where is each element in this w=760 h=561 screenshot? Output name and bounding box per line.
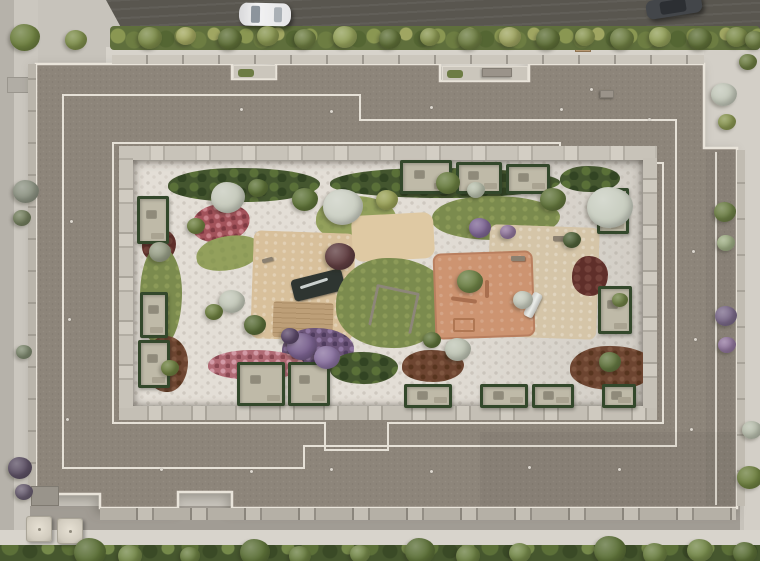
tree — [456, 545, 480, 561]
tree — [509, 543, 531, 561]
tree — [643, 543, 667, 561]
tree — [742, 421, 760, 439]
tree — [405, 538, 435, 561]
courtyard-facade-north — [119, 146, 657, 160]
white-car — [239, 3, 291, 27]
terrace — [137, 196, 169, 244]
vent — [330, 110, 333, 113]
vent — [160, 468, 163, 471]
vent — [430, 470, 433, 473]
hedge-bed — [330, 352, 398, 384]
vent — [692, 250, 695, 253]
terrace — [480, 384, 528, 408]
tree — [594, 536, 626, 561]
terrace — [237, 362, 285, 406]
entrance-canopy — [31, 486, 59, 506]
vent — [66, 418, 69, 421]
tree — [180, 547, 200, 561]
west-facade — [28, 64, 36, 494]
courtyard-facade-south — [119, 406, 657, 420]
courtyard-facade-east — [643, 158, 657, 408]
vent — [240, 108, 243, 111]
terrace — [506, 164, 550, 194]
north-facade-awnings — [112, 55, 704, 64]
swing-set — [368, 284, 420, 334]
tree — [687, 539, 713, 561]
tree — [289, 546, 311, 561]
play-equipment — [453, 318, 475, 332]
tree — [74, 538, 106, 561]
terrace — [602, 384, 636, 408]
vent — [648, 118, 651, 121]
vent — [560, 108, 563, 111]
tree — [745, 31, 760, 49]
tree — [733, 542, 757, 561]
aerial-render — [0, 0, 760, 561]
vent — [68, 318, 71, 321]
vent — [528, 466, 531, 469]
rooftop-equipment — [600, 90, 614, 98]
terrace — [532, 384, 574, 408]
vent — [330, 468, 333, 471]
tree — [737, 466, 760, 489]
east-facade — [737, 150, 745, 506]
vent — [590, 88, 593, 91]
vent — [694, 338, 697, 341]
vent — [430, 106, 433, 109]
rooftop-equipment — [482, 68, 512, 77]
terrace — [140, 292, 168, 338]
tree — [350, 545, 370, 561]
rooftop-terrace — [233, 65, 276, 79]
patio-umbrella — [26, 516, 52, 542]
vent — [618, 468, 621, 471]
vent — [70, 220, 73, 223]
tree — [240, 539, 270, 561]
terrace — [404, 384, 452, 408]
courtyard-facade-west — [119, 158, 133, 408]
vent — [250, 470, 253, 473]
south-facade-balconies — [100, 508, 736, 520]
sand-play-area — [351, 212, 435, 262]
tree — [118, 545, 142, 561]
bench — [511, 256, 525, 261]
play-equipment — [485, 280, 489, 298]
vent — [690, 428, 693, 431]
